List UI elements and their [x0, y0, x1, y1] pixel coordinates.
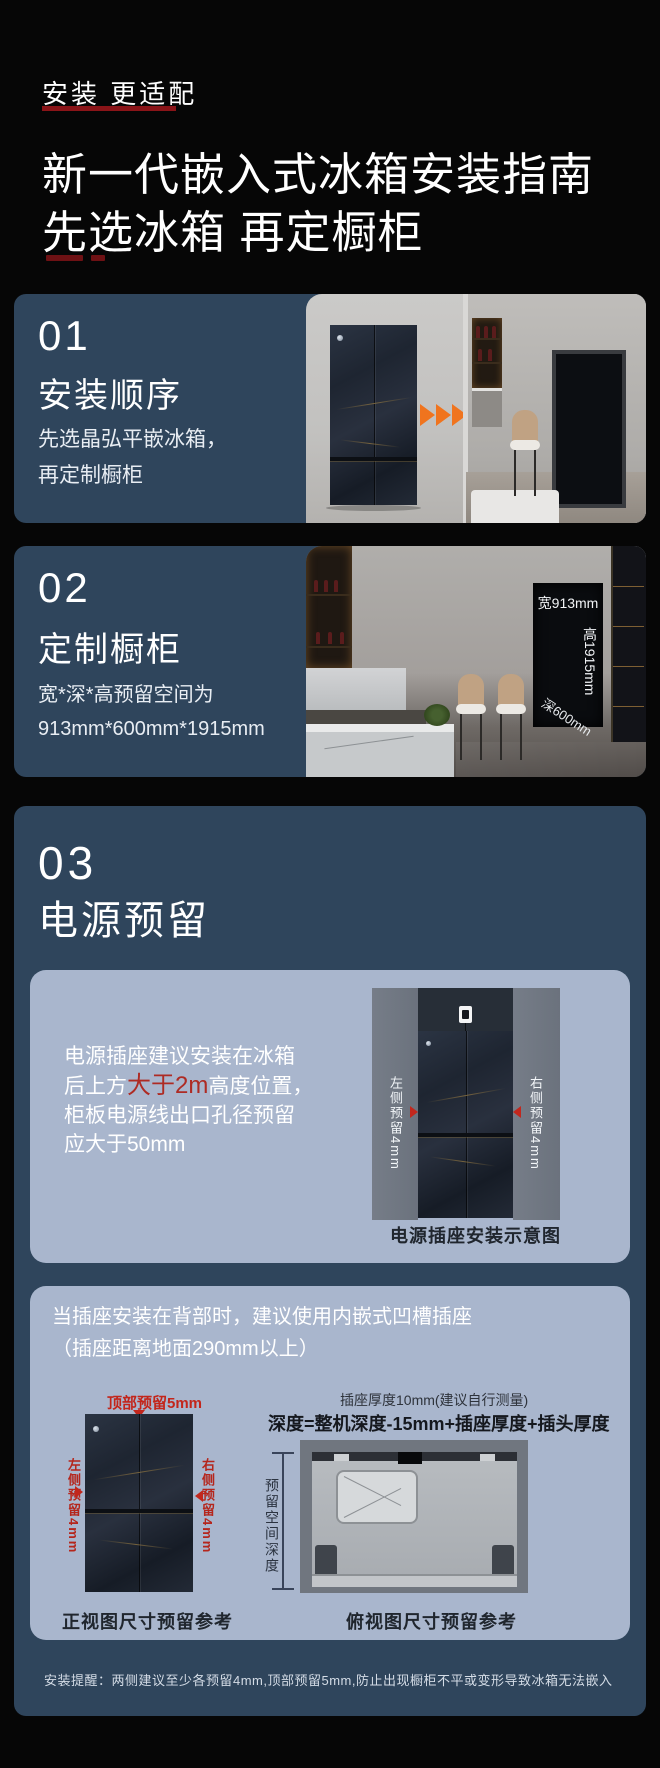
step1-title: 安装顺序 [38, 368, 182, 417]
door-rail [312, 1574, 517, 1587]
main-title-line1: 新一代嵌入式冰箱安装指南 [42, 138, 594, 203]
triple-arrow-right-icon [420, 404, 467, 426]
power-text: 电源插座建议安装在冰箱 后上方大于2m高度位置， 柜板电源线出口孔径预留 应大于… [64, 1042, 313, 1159]
step2-image: 宽913mm 高1915mm 深600mm [306, 546, 646, 777]
fridge-shadow [326, 505, 421, 511]
recess-line1: 当插座安装在背部时，建议使用内嵌式凹槽插座 [52, 1300, 472, 1329]
depth-dimension-line [282, 1452, 284, 1590]
marble-backsplash [306, 668, 406, 712]
depth-formula: 深度=整机深度-15mm+插座厚度+插头厚度 [268, 1410, 610, 1436]
recessed-socket [398, 1452, 422, 1464]
step2-card: 02 定制橱柜 宽*深*高预留空间为 913mm*600mm*1915mm 宽9… [14, 546, 646, 777]
step2-number: 02 [38, 564, 91, 612]
lower-cabinet [472, 388, 502, 427]
fridge-logo [93, 1426, 99, 1432]
power-line1: 电源插座建议安装在冰箱 [64, 1042, 313, 1071]
compressor-plate [336, 1470, 418, 1524]
step1-body-line2: 再定制橱柜 [38, 458, 227, 494]
title-dash-long [46, 255, 83, 261]
install-footnote: 安装提醒：两侧建议至少各预留4mm,顶部预留5mm,防止出现橱柜不平或变形导致冰… [44, 1670, 613, 1689]
step3-number: 03 [38, 836, 97, 890]
arrow-right-icon [436, 404, 451, 426]
front-left-gap-label: 左侧预留4mm [64, 1458, 83, 1554]
eyebrow-underline [42, 106, 176, 111]
step3-title: 电源预留 [38, 888, 210, 946]
niche-depth-label: 深600mm [538, 693, 596, 740]
power-card: 电源插座建议安装在冰箱 后上方大于2m高度位置， 柜板电源线出口孔径预留 应大于… [30, 970, 630, 1263]
step1-number: 01 [38, 312, 91, 360]
power-line3: 柜板电源线出口孔径预留 [64, 1101, 313, 1130]
socket-icon [459, 1006, 472, 1023]
fridge-logo [337, 335, 343, 341]
diagram-fridge [418, 1031, 513, 1218]
step1-body-line1: 先选晶弘平嵌冰箱， [38, 422, 227, 458]
wine-cabinet [306, 546, 352, 668]
red-arrow-left-icon [513, 1106, 521, 1118]
step2-title: 定制橱柜 [38, 622, 182, 671]
power-line4: 应大于50mm [64, 1130, 313, 1159]
niche-height-label: 高1915mm [580, 627, 600, 695]
greenery [424, 704, 450, 726]
wine-cabinet [472, 318, 502, 388]
fridge-top-view [312, 1452, 517, 1587]
red-arrow-right-icon [410, 1106, 418, 1118]
red-arrow-left-icon [195, 1490, 203, 1502]
step1-card: 01 安装顺序 先选晶弘平嵌冰箱， 再定制橱柜 [14, 294, 646, 523]
recess-line2: （插座距离地面290mm以上） [52, 1332, 319, 1361]
fridge-front [330, 325, 417, 505]
kitchen-niche: 宽913mm 高1915mm 深600mm [533, 583, 603, 727]
socket-diagram: 左侧预留4mm 右侧预留4mm [372, 988, 560, 1220]
step3-panel: 03 电源预留 电源插座建议安装在冰箱 后上方大于2m高度位置， 柜板电源线出口… [14, 806, 646, 1716]
front-view-fridge [85, 1414, 193, 1592]
doorway [552, 350, 626, 508]
step2-body: 宽*深*高预留空间为 913mm*600mm*1915mm [38, 678, 265, 746]
title-dash-short [91, 255, 105, 261]
power-line2: 后上方大于2m高度位置， [64, 1071, 313, 1101]
countertop [306, 710, 426, 724]
top-view-caption: 俯视图尺寸预留参考 [346, 1608, 517, 1634]
fridge-door-split [374, 325, 375, 505]
top-view-diagram [300, 1440, 528, 1593]
fridge-door-divider [330, 457, 417, 461]
red-arrow-right-icon [75, 1486, 83, 1498]
step2-body-line1: 宽*深*高预留空间为 [38, 678, 265, 712]
socket-diagram-caption: 电源插座安装示意图 [390, 1222, 561, 1248]
display-cabinet [611, 546, 646, 742]
step1-image [306, 294, 646, 523]
top-gap-label: 顶部预留5mm [107, 1392, 202, 1413]
front-view-caption: 正视图尺寸预留参考 [62, 1608, 233, 1634]
niche-width-label: 宽913mm [533, 593, 603, 613]
right-gap-label: 右侧预留4mm [526, 1076, 545, 1171]
step1-body: 先选晶弘平嵌冰箱， 再定制橱柜 [38, 422, 227, 494]
depth-dimension-label: 预留空间深度 [262, 1478, 282, 1574]
front-right-gap-label: 右侧预留4mm [198, 1458, 217, 1554]
page: 安装 更适配 新一代嵌入式冰箱安装指南 先选冰箱 再定橱柜 01 安装顺序 先选… [0, 0, 660, 1768]
socket-thickness-note: 插座厚度10mm(建议自行测量) [340, 1390, 528, 1410]
kitchen-island [306, 724, 454, 777]
cabinet-top [418, 988, 513, 1031]
main-title-line2: 先选冰箱 再定橱柜 [42, 196, 424, 261]
power-highlight: 大于2m [127, 1072, 208, 1099]
left-gap-label: 左侧预留4mm [386, 1076, 405, 1171]
fridge-logo [426, 1041, 431, 1046]
step2-body-line2: 913mm*600mm*1915mm [38, 712, 265, 746]
arrow-right-icon [420, 404, 435, 426]
recess-card: 当插座安装在背部时，建议使用内嵌式凹槽插座 （插座距离地面290mm以上） 顶部… [30, 1286, 630, 1640]
